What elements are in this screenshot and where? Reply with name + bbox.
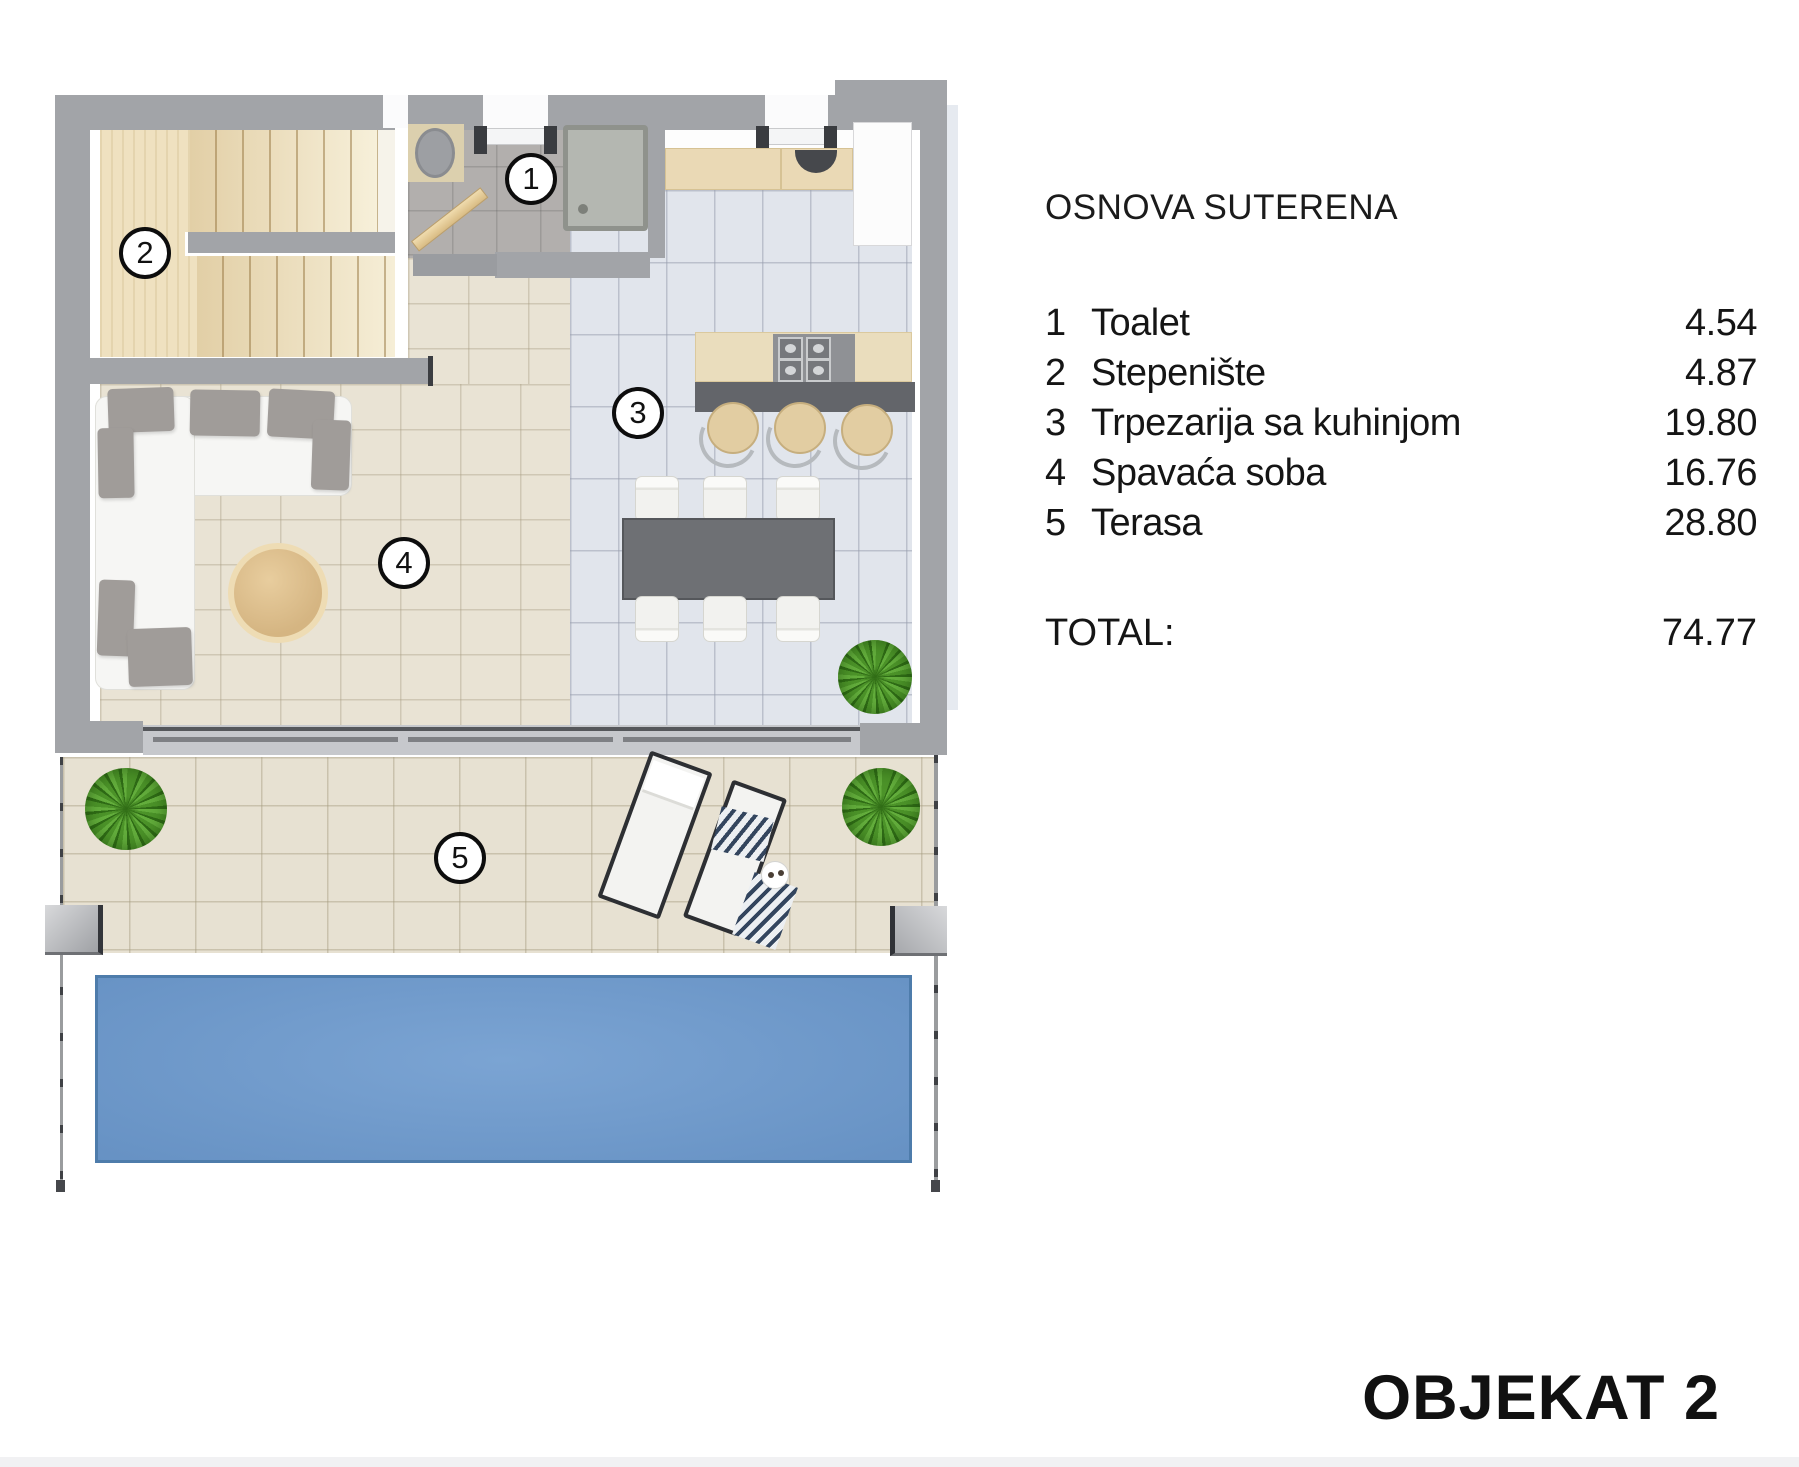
wall-toilet-right: [648, 95, 665, 258]
wall-stair-bedroom: [55, 358, 430, 384]
legend-label: Terasa: [1091, 502, 1664, 545]
room-marker-3: 3: [612, 387, 664, 439]
window-1-sill: [477, 128, 554, 145]
shower-drain-icon: [578, 204, 588, 214]
room-marker-2: 2: [119, 227, 171, 279]
legend-label: Stepenište: [1091, 352, 1685, 395]
legend-num: 5: [1045, 502, 1091, 545]
bar-stool: [774, 402, 826, 454]
towel: [711, 806, 774, 862]
sofa-cushion: [190, 389, 261, 436]
wall-left-foot: [90, 721, 143, 753]
lounger-headrest: [642, 760, 704, 810]
window-1-bracket-right: [544, 126, 557, 154]
plant-icon: [838, 640, 912, 714]
outer-side-strip: [947, 105, 958, 710]
legend-area: 28.80: [1664, 502, 1757, 545]
legend-num: 3: [1045, 402, 1091, 445]
legend-total: TOTAL: 74.77: [1045, 612, 1757, 655]
terrace-floor: [63, 757, 936, 953]
legend-label: Trpezarija sa kuhinjom: [1091, 402, 1664, 445]
terrace-edge-right: [934, 755, 938, 1192]
total-label: TOTAL:: [1045, 612, 1175, 655]
wall-toilet-bottom: [495, 252, 650, 278]
dining-chair: [703, 596, 747, 642]
room-marker-label: 1: [522, 161, 539, 197]
sofa-cushion: [107, 387, 174, 433]
terrace-pillar-left: [45, 905, 103, 955]
wall-left: [55, 95, 90, 753]
room-marker-label: 2: [136, 235, 153, 271]
deck-line-end-right: [931, 1180, 940, 1192]
legend-num: 2: [1045, 352, 1091, 395]
side-table: [761, 861, 789, 889]
legend-row: 3 Trpezarija sa kuhinjom 19.80: [1045, 398, 1757, 448]
plant-icon: [842, 768, 920, 846]
legend-row: 4 Spavaća soba 16.76: [1045, 448, 1757, 498]
room-marker-1: 1: [505, 153, 557, 205]
kitchen-cabinet: [853, 122, 912, 246]
sheet-bottom-strip: [0, 1457, 1799, 1467]
bar-stool: [841, 404, 893, 456]
door-jamb-tick: [428, 356, 433, 386]
room-marker-label: 3: [629, 395, 646, 431]
dining-chair: [635, 476, 679, 522]
object-title: OBJEKAT 2: [1362, 1362, 1720, 1434]
cup-icon: [778, 870, 784, 876]
sofa-cushion: [127, 627, 193, 687]
window-2-gap: [765, 95, 828, 128]
toilet-door-threshold: [413, 254, 497, 276]
stair-divider-wall: [185, 232, 408, 256]
terrace-pillar-right: [890, 906, 947, 956]
burner-icon: [806, 359, 831, 382]
wall-right: [920, 95, 947, 755]
burner-icon: [778, 359, 803, 382]
coffee-table: [228, 543, 328, 643]
door-panel: [408, 737, 613, 742]
stair-flight-lower: [197, 256, 408, 357]
stair-toilet-partition: [395, 122, 408, 357]
door-panel: [623, 737, 851, 742]
room-marker-4: 4: [378, 537, 430, 589]
floor-plan-sheet: 1 2 3 4 5 OSNOVA SUTERENA 1 Toalet 4.54 …: [0, 0, 1799, 1467]
room-marker-label: 4: [395, 545, 412, 581]
counter-seam: [780, 148, 782, 190]
sofa-cushion: [97, 428, 134, 499]
legend-row: 1 Toalet 4.54: [1045, 298, 1757, 348]
door-track: [143, 727, 860, 731]
legend-num: 1: [1045, 302, 1091, 345]
sofa-cushion: [311, 419, 351, 490]
plan-title: OSNOVA SUTERENA: [1045, 188, 1398, 228]
toilet-bowl-icon: [415, 128, 455, 178]
cup-icon: [768, 872, 774, 878]
shower-tray: [563, 125, 648, 231]
wall-door-right: [860, 723, 920, 755]
dining-chair: [635, 596, 679, 642]
window-niche: [383, 95, 408, 128]
legend-label: Spavaća soba: [1091, 452, 1664, 495]
legend-area: 4.87: [1685, 352, 1757, 395]
cooktop: [773, 334, 855, 382]
total-value: 74.77: [1175, 612, 1757, 655]
room-marker-label: 5: [451, 840, 468, 876]
swimming-pool: [95, 975, 912, 1163]
dining-chair: [776, 476, 820, 522]
dining-table: [622, 518, 835, 600]
legend-row: 5 Terasa 28.80: [1045, 498, 1757, 548]
window-1-bracket-left: [474, 126, 487, 154]
plant-icon: [85, 768, 167, 850]
legend-label: Toalet: [1091, 302, 1685, 345]
window-2-sill: [759, 128, 834, 145]
sliding-door: [143, 725, 860, 755]
legend: 1 Toalet 4.54 2 Stepenište 4.87 3 Trpeza…: [1045, 298, 1757, 548]
legend-area: 16.76: [1664, 452, 1757, 495]
stair-flight-upper: [190, 122, 378, 232]
window-1-gap: [483, 95, 548, 128]
legend-area: 19.80: [1664, 402, 1757, 445]
legend-area: 4.54: [1685, 302, 1757, 345]
bar-stool: [707, 402, 759, 454]
dining-chair: [776, 596, 820, 642]
burner-icon: [806, 337, 831, 360]
burner-icon: [778, 337, 803, 360]
deck-line-end-left: [56, 1180, 65, 1192]
dining-chair: [703, 476, 747, 522]
terrace-edge-left: [60, 757, 63, 1192]
legend-num: 4: [1045, 452, 1091, 495]
room-marker-5: 5: [434, 832, 486, 884]
legend-row: 2 Stepenište 4.87: [1045, 348, 1757, 398]
door-panel: [153, 737, 398, 742]
